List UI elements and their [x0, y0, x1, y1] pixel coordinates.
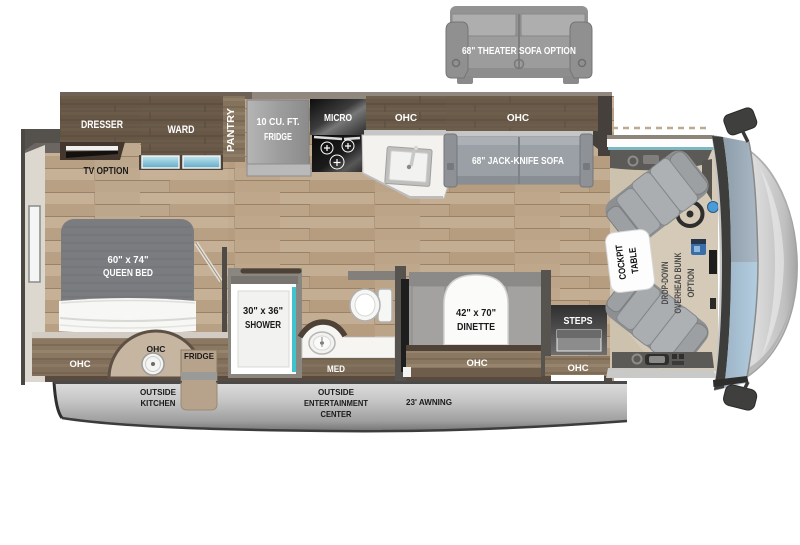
svg-text:23' AWNING: 23' AWNING	[406, 397, 452, 407]
svg-text:OHC: OHC	[69, 359, 90, 370]
svg-text:10 CU. FT.: 10 CU. FT.	[257, 116, 300, 128]
svg-text:68" JACK-KNIFE SOFA: 68" JACK-KNIFE SOFA	[472, 156, 564, 167]
svg-text:DRESSER: DRESSER	[81, 119, 123, 131]
svg-text:DROP-DOWN: DROP-DOWN	[660, 262, 670, 305]
svg-text:FRIDGE: FRIDGE	[184, 351, 214, 361]
svg-text:60" x 74": 60" x 74"	[108, 255, 149, 266]
svg-text:OHC: OHC	[395, 113, 417, 124]
svg-text:30" x 36": 30" x 36"	[243, 306, 283, 317]
svg-text:OUTSIDE: OUTSIDE	[318, 387, 354, 397]
svg-text:TV OPTION: TV OPTION	[84, 166, 129, 177]
svg-text:42" x 70": 42" x 70"	[456, 308, 496, 319]
svg-text:WARD: WARD	[168, 124, 195, 136]
svg-text:KITCHEN: KITCHEN	[141, 398, 176, 408]
svg-text:OVERHEAD BUNK: OVERHEAD BUNK	[673, 252, 683, 313]
svg-text:68" THEATER SOFA OPTION: 68" THEATER SOFA OPTION	[462, 45, 576, 57]
svg-text:MICRO: MICRO	[324, 112, 352, 124]
svg-text:OHC: OHC	[567, 363, 588, 374]
svg-text:QUEEN BED: QUEEN BED	[103, 268, 153, 279]
svg-text:CENTER: CENTER	[321, 409, 352, 419]
svg-text:FRIDGE: FRIDGE	[264, 131, 292, 143]
svg-text:ENTERTAINMENT: ENTERTAINMENT	[304, 398, 369, 408]
svg-text:OHC: OHC	[466, 358, 487, 369]
svg-text:OHC: OHC	[147, 344, 166, 354]
svg-text:PANTRY: PANTRY	[226, 108, 237, 152]
svg-text:OUTSIDE: OUTSIDE	[140, 387, 176, 397]
svg-text:OHC: OHC	[507, 113, 529, 124]
svg-text:SHOWER: SHOWER	[245, 320, 282, 331]
svg-text:DINETTE: DINETTE	[457, 322, 495, 333]
svg-text:STEPS: STEPS	[564, 316, 593, 327]
svg-text:MED: MED	[327, 364, 345, 375]
svg-text:OPTION: OPTION	[686, 269, 696, 298]
